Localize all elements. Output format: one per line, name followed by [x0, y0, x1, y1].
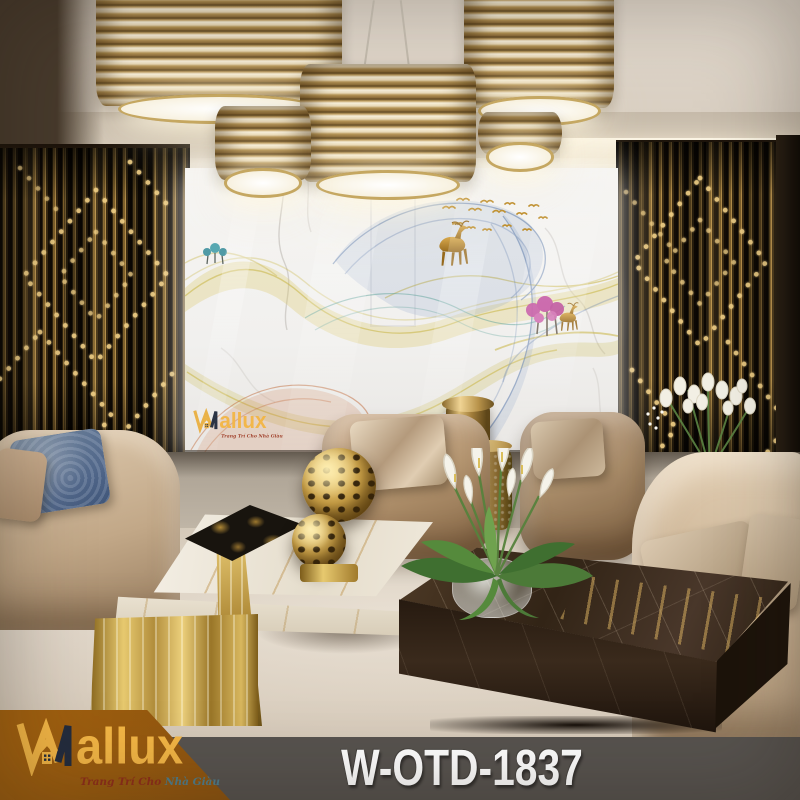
gold-mirror-base: [90, 614, 258, 726]
pendant-lamp-small-left: [215, 106, 311, 194]
wallux-house-w-icon: [16, 718, 80, 776]
lamp-gold-rings: [300, 64, 476, 182]
brand-tagline: Trang Trí Cho Nhà Giàu: [80, 776, 220, 788]
watermark-tagline: Trang Trí Cho Nhà Giàu: [221, 434, 283, 439]
tagline-part2: Nhà Giàu: [165, 776, 220, 788]
left-wall-diamond-pattern: [0, 148, 190, 473]
tan-pillow: [0, 447, 48, 523]
left-feature-wall: [0, 148, 190, 473]
ceiling-dark-corner: [0, 0, 104, 162]
sculpture-pedestal: [300, 564, 358, 582]
room-photo: allux Trang Trí Cho Nhà Giàu: [0, 0, 800, 800]
babys-breath: [646, 406, 663, 429]
lamp-diffuser-glow: [316, 170, 460, 200]
pendant-lamp-center: [300, 64, 476, 196]
right-dark-column: [776, 135, 800, 475]
wallux-logo: allux Trang Trí Cho Nhà Giàu: [16, 718, 221, 800]
product-code: W-OTD-1837: [316, 740, 607, 796]
watermark-logo-text: allux: [219, 408, 266, 433]
pendant-lamp-small-right: [478, 112, 562, 168]
tagline-part1: Trang Trí Cho: [80, 776, 161, 788]
wallux-logo-text: allux: [76, 718, 183, 774]
gold-sphere-sculpture: [302, 448, 376, 522]
lamp-diffuser-glow: [224, 168, 303, 198]
lily-bouquet: [385, 448, 605, 628]
gold-sphere-sculpture-small: [292, 514, 346, 568]
wallux-house-w-icon: [193, 408, 221, 434]
lamp-gold-rings: [464, 0, 614, 108]
watermark-logo: allux Trang Trí Cho Nhà Giàu: [193, 408, 283, 445]
pendant-lamp-large-right: [464, 0, 614, 122]
lamp-diffuser-glow: [486, 142, 555, 172]
